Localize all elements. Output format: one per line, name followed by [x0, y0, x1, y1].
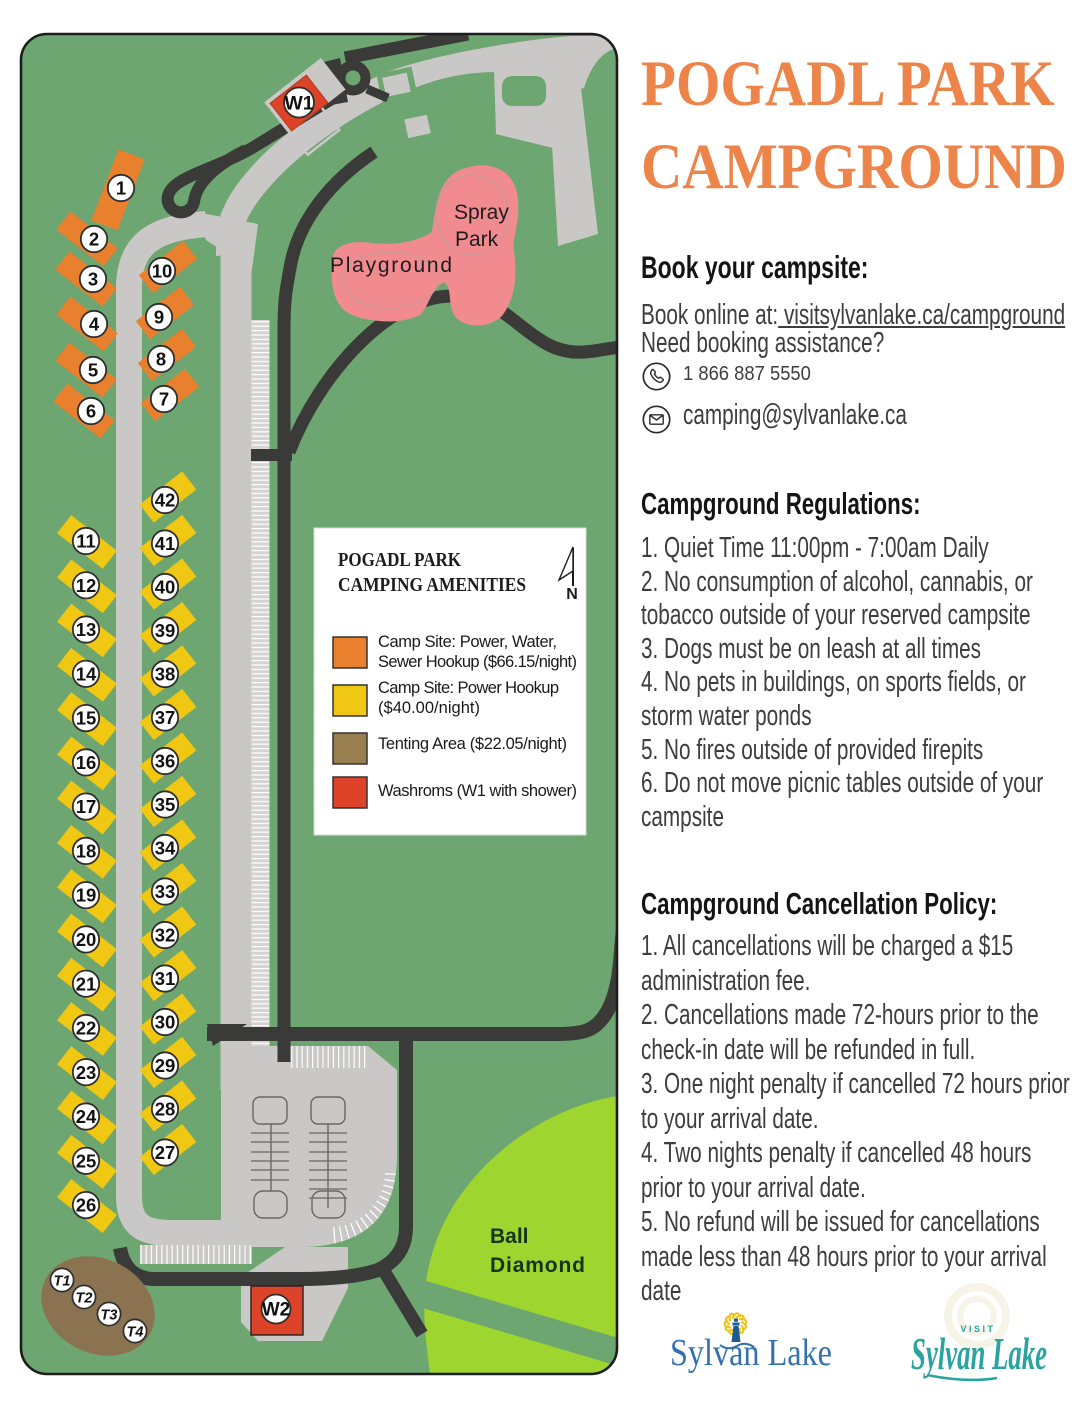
svg-text:Park: Park [455, 228, 499, 251]
svg-text:11: 11 [76, 531, 96, 552]
svg-text:14: 14 [76, 663, 97, 684]
svg-text:Spray: Spray [454, 201, 509, 224]
svg-text:Ball: Ball [490, 1225, 529, 1248]
svg-text:Washroms (W1 with shower): Washroms (W1 with shower) [378, 782, 577, 800]
svg-text:42: 42 [155, 490, 176, 511]
svg-text:10: 10 [152, 261, 173, 282]
svg-text:34: 34 [155, 838, 176, 859]
svg-text:27: 27 [155, 1142, 176, 1163]
svg-text:Playground: Playground [330, 254, 452, 277]
svg-text:16: 16 [76, 752, 97, 773]
svg-text:23: 23 [76, 1062, 97, 1083]
svg-text:($40.00/night): ($40.00/night) [378, 699, 480, 717]
svg-text:39: 39 [155, 620, 176, 641]
svg-text:2: 2 [89, 229, 99, 250]
svg-text:41: 41 [155, 533, 176, 554]
svg-text:Tenting Area ($22.05/night): Tenting Area ($22.05/night) [378, 735, 567, 753]
svg-text:W1: W1 [284, 92, 313, 114]
svg-text:32: 32 [155, 925, 176, 946]
svg-text:30: 30 [155, 1012, 176, 1033]
svg-text:13: 13 [76, 619, 97, 640]
svg-text:17: 17 [76, 796, 97, 817]
svg-text:19: 19 [76, 885, 97, 906]
svg-text:Sylvan Lake: Sylvan Lake [911, 1328, 1047, 1379]
svg-text:Camp Site: Power, Water,: Camp Site: Power, Water, [378, 633, 557, 651]
svg-text:21: 21 [76, 973, 97, 994]
svg-text:7: 7 [159, 389, 169, 410]
svg-text:26: 26 [76, 1195, 97, 1216]
svg-text:N: N [566, 586, 578, 603]
svg-text:33: 33 [155, 881, 176, 902]
svg-text:T1: T1 [54, 1273, 71, 1289]
svg-text:POGADL PARK: POGADL PARK [338, 549, 461, 571]
svg-text:40: 40 [155, 577, 176, 598]
svg-text:Camp Site: Power Hookup: Camp Site: Power Hookup [378, 679, 559, 697]
svg-text:5: 5 [88, 360, 98, 381]
svg-text:T2: T2 [76, 1290, 93, 1306]
svg-text:18: 18 [76, 841, 97, 862]
svg-text:28: 28 [155, 1099, 176, 1120]
svg-text:T3: T3 [101, 1307, 118, 1323]
svg-text:Sewer Hookup ($66.15/night): Sewer Hookup ($66.15/night) [378, 653, 577, 671]
svg-text:29: 29 [155, 1055, 176, 1076]
svg-text:12: 12 [76, 575, 97, 596]
svg-text:20: 20 [76, 929, 97, 950]
svg-text:W2: W2 [262, 1300, 291, 1321]
svg-text:1: 1 [116, 178, 126, 199]
svg-text:6: 6 [86, 401, 96, 422]
svg-text:25: 25 [76, 1150, 97, 1171]
svg-text:Diamond: Diamond [490, 1254, 585, 1277]
svg-text:9: 9 [154, 307, 164, 328]
svg-text:T4: T4 [127, 1324, 144, 1340]
svg-text:35: 35 [155, 794, 176, 815]
svg-text:CAMPING AMENITIES: CAMPING AMENITIES [338, 574, 526, 596]
svg-text:38: 38 [155, 664, 176, 685]
svg-text:3: 3 [88, 269, 98, 290]
svg-text:36: 36 [155, 751, 176, 772]
svg-text:37: 37 [155, 707, 176, 728]
svg-text:24: 24 [76, 1106, 97, 1127]
svg-text:31: 31 [155, 968, 176, 989]
svg-text:15: 15 [76, 708, 97, 729]
svg-text:4: 4 [89, 314, 100, 335]
svg-text:22: 22 [76, 1018, 97, 1039]
svg-text:8: 8 [156, 349, 166, 370]
svg-text:Sylvan Lake: Sylvan Lake [670, 1332, 832, 1374]
